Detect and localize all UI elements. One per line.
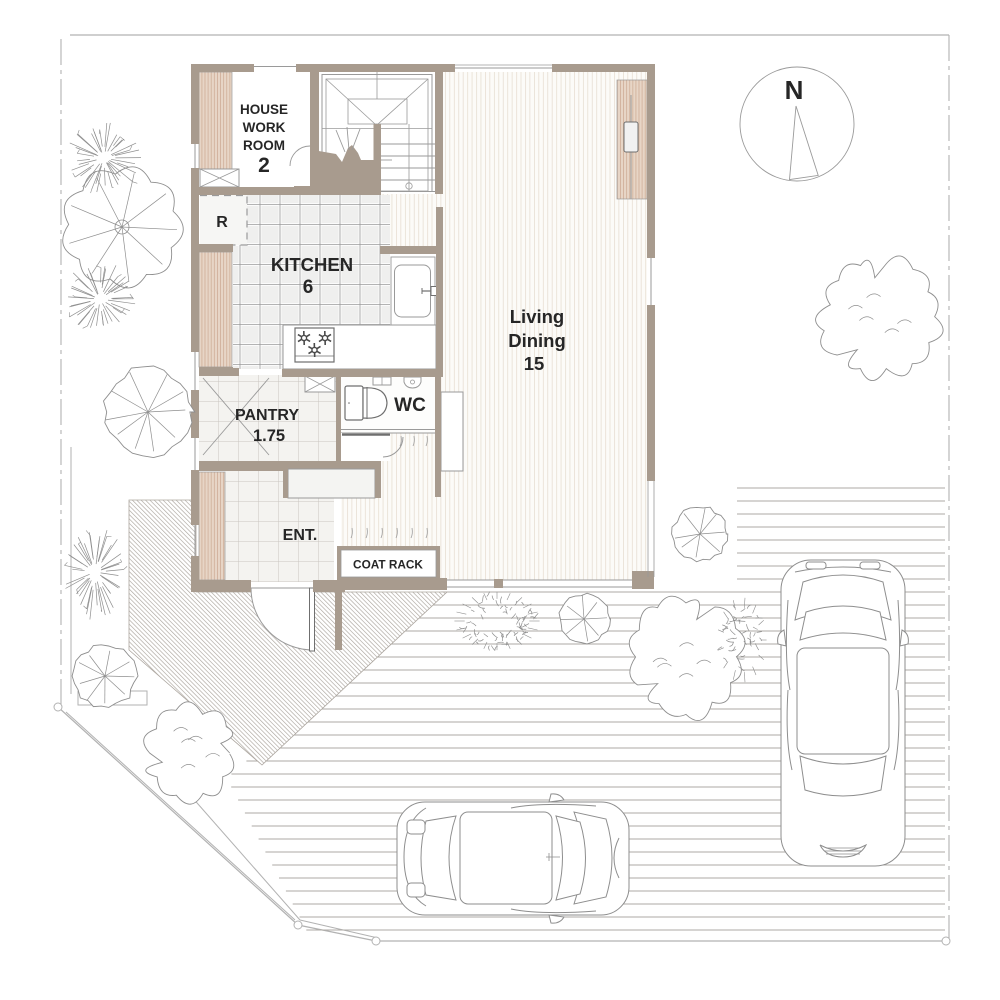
svg-text:COAT RACK: COAT RACK xyxy=(353,558,423,572)
svg-text:2: 2 xyxy=(258,154,270,177)
svg-text:6: 6 xyxy=(303,277,314,298)
svg-text:WC: WC xyxy=(394,395,426,416)
svg-text:WORK: WORK xyxy=(243,120,286,135)
svg-text:PANTRY: PANTRY xyxy=(235,407,299,424)
svg-text:R: R xyxy=(216,214,228,231)
svg-text:ROOM: ROOM xyxy=(243,138,285,153)
svg-text:Living: Living xyxy=(510,306,564,327)
svg-text:ENT.: ENT. xyxy=(283,527,318,544)
svg-text:N: N xyxy=(785,75,804,105)
svg-text:15: 15 xyxy=(524,353,545,374)
svg-text:KITCHEN: KITCHEN xyxy=(271,254,353,275)
svg-text:Dining: Dining xyxy=(508,330,566,351)
svg-text:1.75: 1.75 xyxy=(253,427,285,445)
svg-text:HOUSE: HOUSE xyxy=(240,102,288,117)
